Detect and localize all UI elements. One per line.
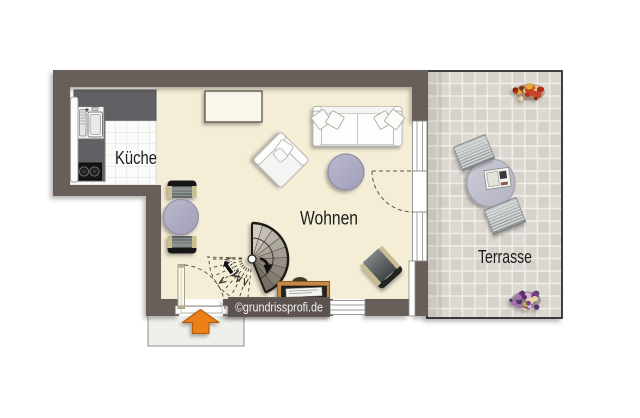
svg-text:©grundrissprofi.de: ©grundrissprofi.de — [235, 300, 323, 315]
svg-text:Küche: Küche — [115, 148, 157, 168]
svg-text:Terrasse: Terrasse — [478, 246, 532, 267]
svg-text:Wohnen: Wohnen — [300, 208, 358, 230]
